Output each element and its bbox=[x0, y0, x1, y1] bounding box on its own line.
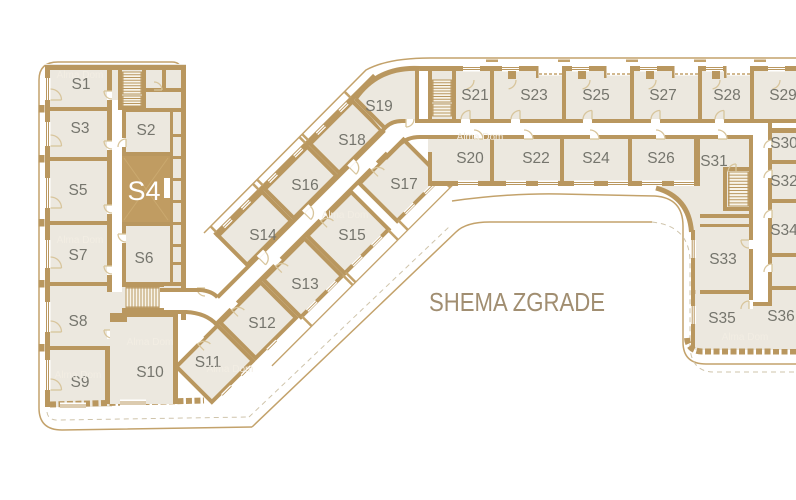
svg-text:S32: S32 bbox=[770, 173, 796, 190]
svg-text:S3: S3 bbox=[71, 120, 90, 137]
svg-text:Alma Dom: Alma Dom bbox=[127, 337, 174, 348]
svg-text:S31: S31 bbox=[700, 153, 728, 170]
svg-text:S6: S6 bbox=[135, 250, 154, 267]
svg-text:S28: S28 bbox=[713, 87, 741, 104]
svg-text:S5: S5 bbox=[69, 182, 88, 199]
svg-text:S25: S25 bbox=[582, 87, 610, 104]
svg-text:S17: S17 bbox=[390, 176, 418, 193]
svg-text:Alma Dom: Alma Dom bbox=[722, 332, 769, 343]
svg-text:Alma Dom: Alma Dom bbox=[57, 70, 104, 81]
svg-text:SHEMA ZGRADE: SHEMA ZGRADE bbox=[429, 287, 605, 317]
svg-text:S19: S19 bbox=[365, 98, 393, 115]
svg-text:S30: S30 bbox=[770, 135, 796, 152]
svg-text:S22: S22 bbox=[522, 150, 550, 167]
svg-text:S10: S10 bbox=[136, 364, 164, 381]
svg-text:S23: S23 bbox=[520, 87, 548, 104]
svg-text:S16: S16 bbox=[291, 177, 319, 194]
svg-text:S33: S33 bbox=[709, 251, 737, 268]
svg-text:Alma Dom: Alma Dom bbox=[57, 235, 104, 246]
svg-text:S20: S20 bbox=[456, 150, 484, 167]
svg-text:S14: S14 bbox=[249, 227, 277, 244]
svg-text:Alma Dom: Alma Dom bbox=[207, 364, 254, 375]
svg-text:S35: S35 bbox=[708, 310, 736, 327]
svg-text:Alma Dom: Alma Dom bbox=[322, 210, 369, 221]
svg-text:S7: S7 bbox=[69, 247, 88, 264]
svg-text:Alma Dom: Alma Dom bbox=[457, 132, 504, 143]
svg-text:Alma Dom: Alma Dom bbox=[55, 370, 102, 381]
svg-text:S36: S36 bbox=[767, 308, 795, 325]
svg-text:S24: S24 bbox=[582, 150, 610, 167]
svg-text:S13: S13 bbox=[291, 276, 319, 293]
svg-text:S2: S2 bbox=[137, 122, 156, 139]
svg-text:S18: S18 bbox=[338, 132, 366, 149]
svg-text:S34: S34 bbox=[770, 222, 796, 239]
svg-text:S15: S15 bbox=[338, 227, 366, 244]
svg-text:S29: S29 bbox=[769, 87, 796, 104]
svg-text:S4: S4 bbox=[127, 176, 160, 206]
svg-text:S21: S21 bbox=[461, 87, 489, 104]
svg-text:S8: S8 bbox=[69, 313, 88, 330]
svg-text:S26: S26 bbox=[647, 150, 675, 167]
svg-text:S27: S27 bbox=[649, 87, 677, 104]
svg-text:S12: S12 bbox=[248, 315, 276, 332]
